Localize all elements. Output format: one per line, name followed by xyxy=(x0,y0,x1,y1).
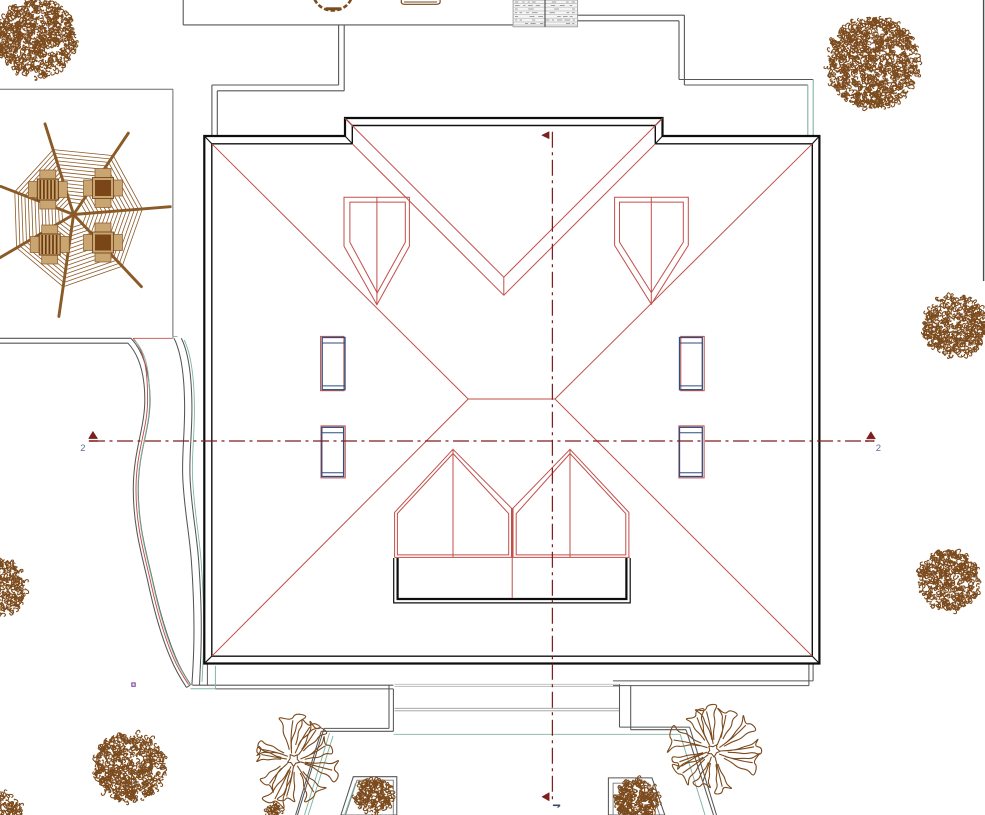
svg-text:2: 2 xyxy=(876,443,881,454)
svg-text:2: 2 xyxy=(80,443,85,454)
